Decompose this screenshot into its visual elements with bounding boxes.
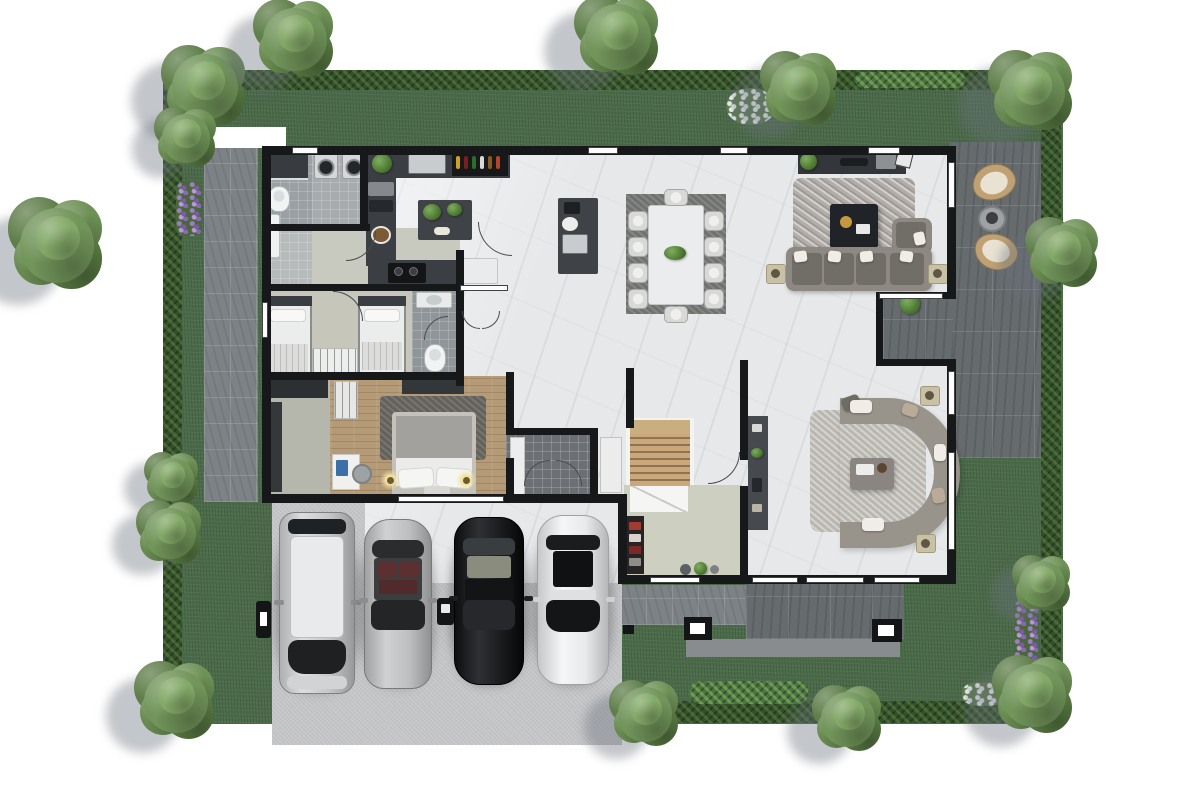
tree-foliage: [156, 513, 186, 543]
tree-foliage: [1047, 231, 1081, 265]
tree-foliage: [1014, 66, 1053, 105]
tree-foliage: [833, 698, 865, 730]
tree-foliage: [187, 61, 226, 100]
floor-plan-image: [0, 0, 1200, 800]
tree-foliage: [600, 11, 639, 50]
tree-foliage: [160, 462, 185, 487]
tree-foliage: [172, 119, 201, 148]
tree-foliage: [36, 216, 80, 260]
tree-foliage: [630, 693, 662, 725]
layer-trees: [0, 0, 1200, 800]
